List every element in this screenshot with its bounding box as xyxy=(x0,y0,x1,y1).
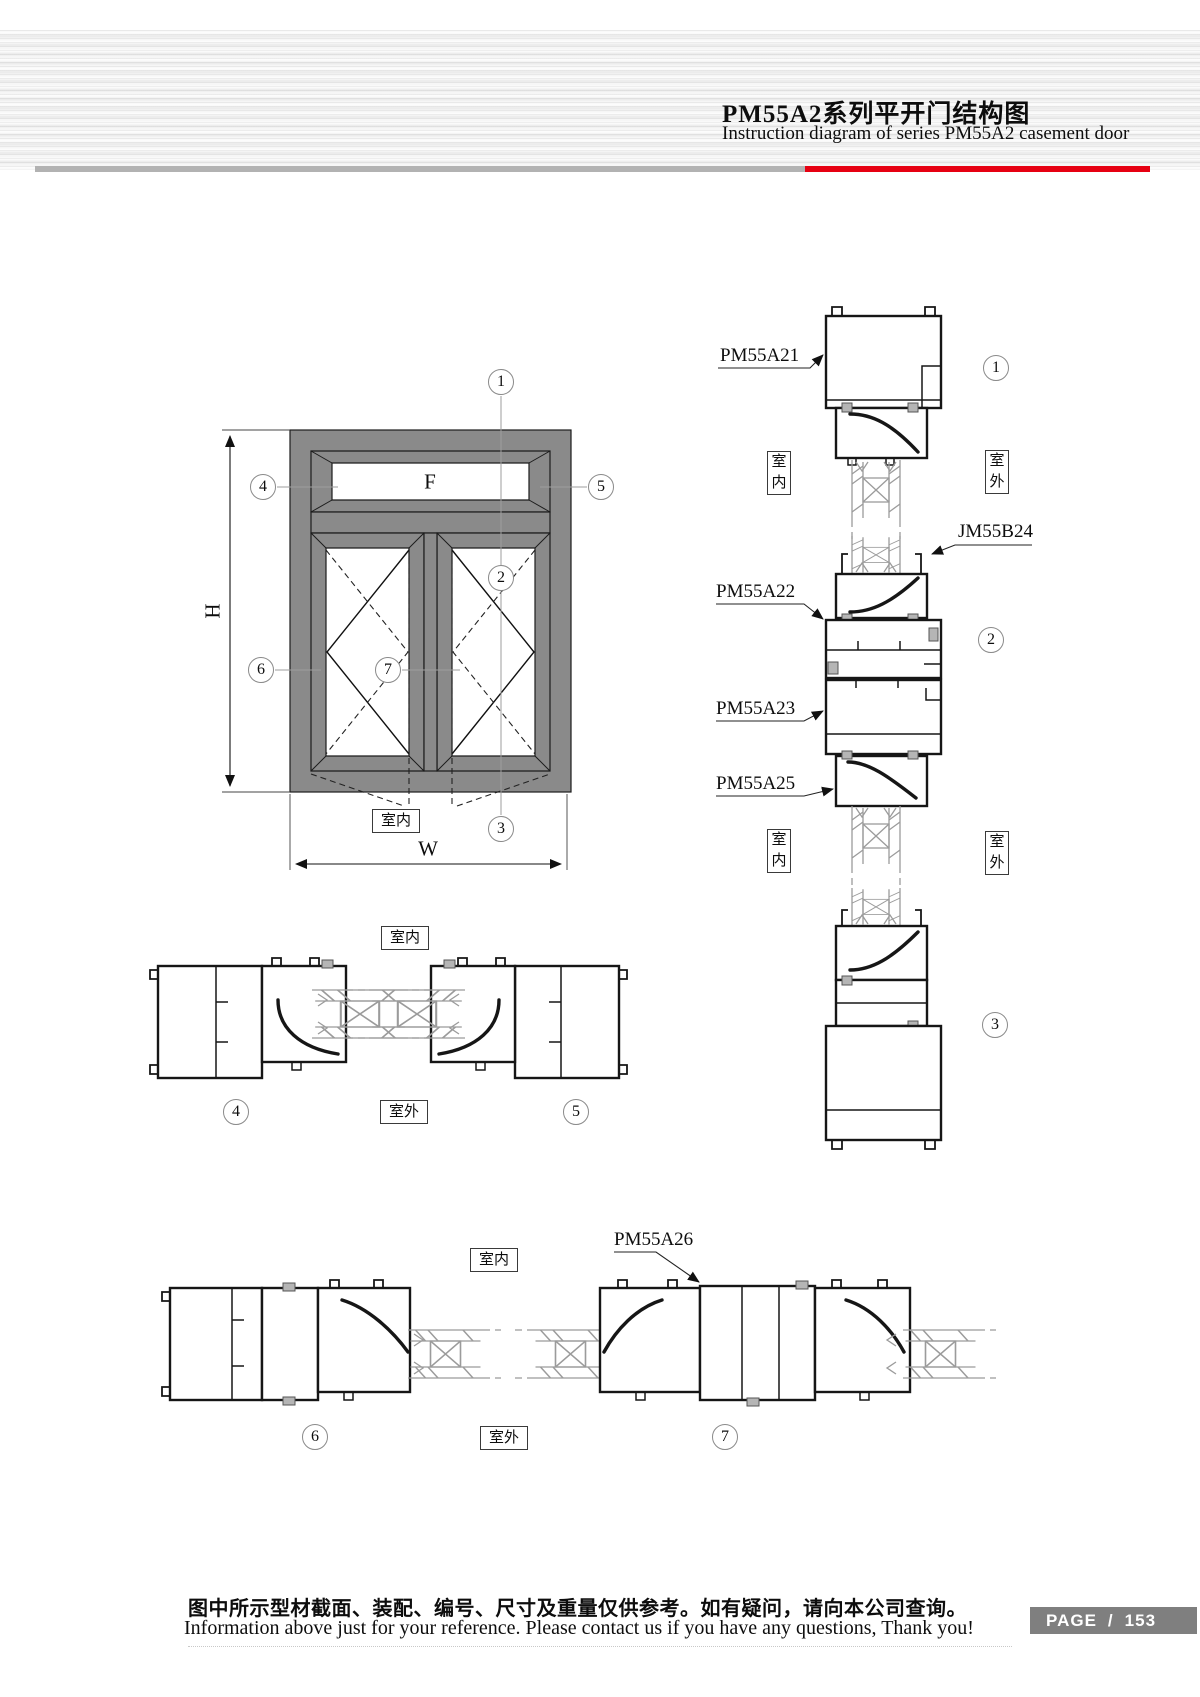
diagram-lineart xyxy=(0,0,1200,1697)
indoor-label-stack-top: 室内 xyxy=(767,451,791,495)
callout-1-elevation: 1 xyxy=(488,369,514,395)
height-dimension-label: H xyxy=(201,603,226,618)
section-4-profile xyxy=(150,958,432,1078)
profile-label-pm55a22: PM55A22 xyxy=(716,581,795,603)
section-7-profile xyxy=(515,1252,996,1406)
callout-2-elevation: 2 xyxy=(488,565,514,591)
indoor-label-row67: 室内 xyxy=(470,1248,518,1272)
indoor-label-stack-bottom: 室内 xyxy=(767,829,791,873)
callout-5-section: 5 xyxy=(563,1099,589,1125)
callout-2-section: 2 xyxy=(978,627,1004,653)
section-5-profile xyxy=(345,958,627,1078)
catalog-page: PM55A2系列平开门结构图 Instruction diagram of se… xyxy=(0,0,1200,1697)
page-separator: / xyxy=(1108,1611,1114,1630)
callout-1-section: 1 xyxy=(983,355,1009,381)
outdoor-label-row67: 室外 xyxy=(480,1426,528,1450)
page-label: PAGE xyxy=(1046,1611,1097,1630)
callout-4-section: 4 xyxy=(223,1099,249,1125)
indoor-label-row45: 室内 xyxy=(381,926,429,950)
callout-5-elevation: 5 xyxy=(588,474,614,500)
callout-6-section: 6 xyxy=(302,1424,328,1450)
page-number: 153 xyxy=(1125,1611,1156,1630)
outdoor-label-row45: 室外 xyxy=(380,1100,428,1124)
profile-label-jm55b24: JM55B24 xyxy=(958,521,1033,543)
profile-label-pm55a23: PM55A23 xyxy=(716,698,795,720)
callout-7-section: 7 xyxy=(712,1424,738,1450)
outdoor-label-stack-bottom: 室外 xyxy=(985,831,1009,875)
section-6-profile xyxy=(162,1280,501,1405)
width-dimension-label: W xyxy=(418,837,438,862)
callout-4-elevation: 4 xyxy=(250,474,276,500)
indoor-label-elevation: 室内 xyxy=(372,809,420,833)
callout-6-elevation: 6 xyxy=(248,657,274,683)
profile-label-pm55a26: PM55A26 xyxy=(614,1229,693,1251)
elevation-drawing xyxy=(275,396,587,815)
profile-label-pm55a21: PM55A21 xyxy=(720,345,799,367)
footer-divider xyxy=(188,1646,1012,1647)
page-number-badge: PAGE/153 xyxy=(1030,1607,1197,1634)
fixed-panel-label: F xyxy=(424,470,436,495)
profile-label-pm55a25: PM55A25 xyxy=(716,773,795,795)
outdoor-label-stack-top: 室外 xyxy=(985,450,1009,494)
callout-3-section: 3 xyxy=(982,1012,1008,1038)
footer-note-en: Information above just for your referenc… xyxy=(184,1617,974,1640)
callout-7-elevation: 7 xyxy=(375,657,401,683)
callout-3-elevation: 3 xyxy=(488,816,514,842)
